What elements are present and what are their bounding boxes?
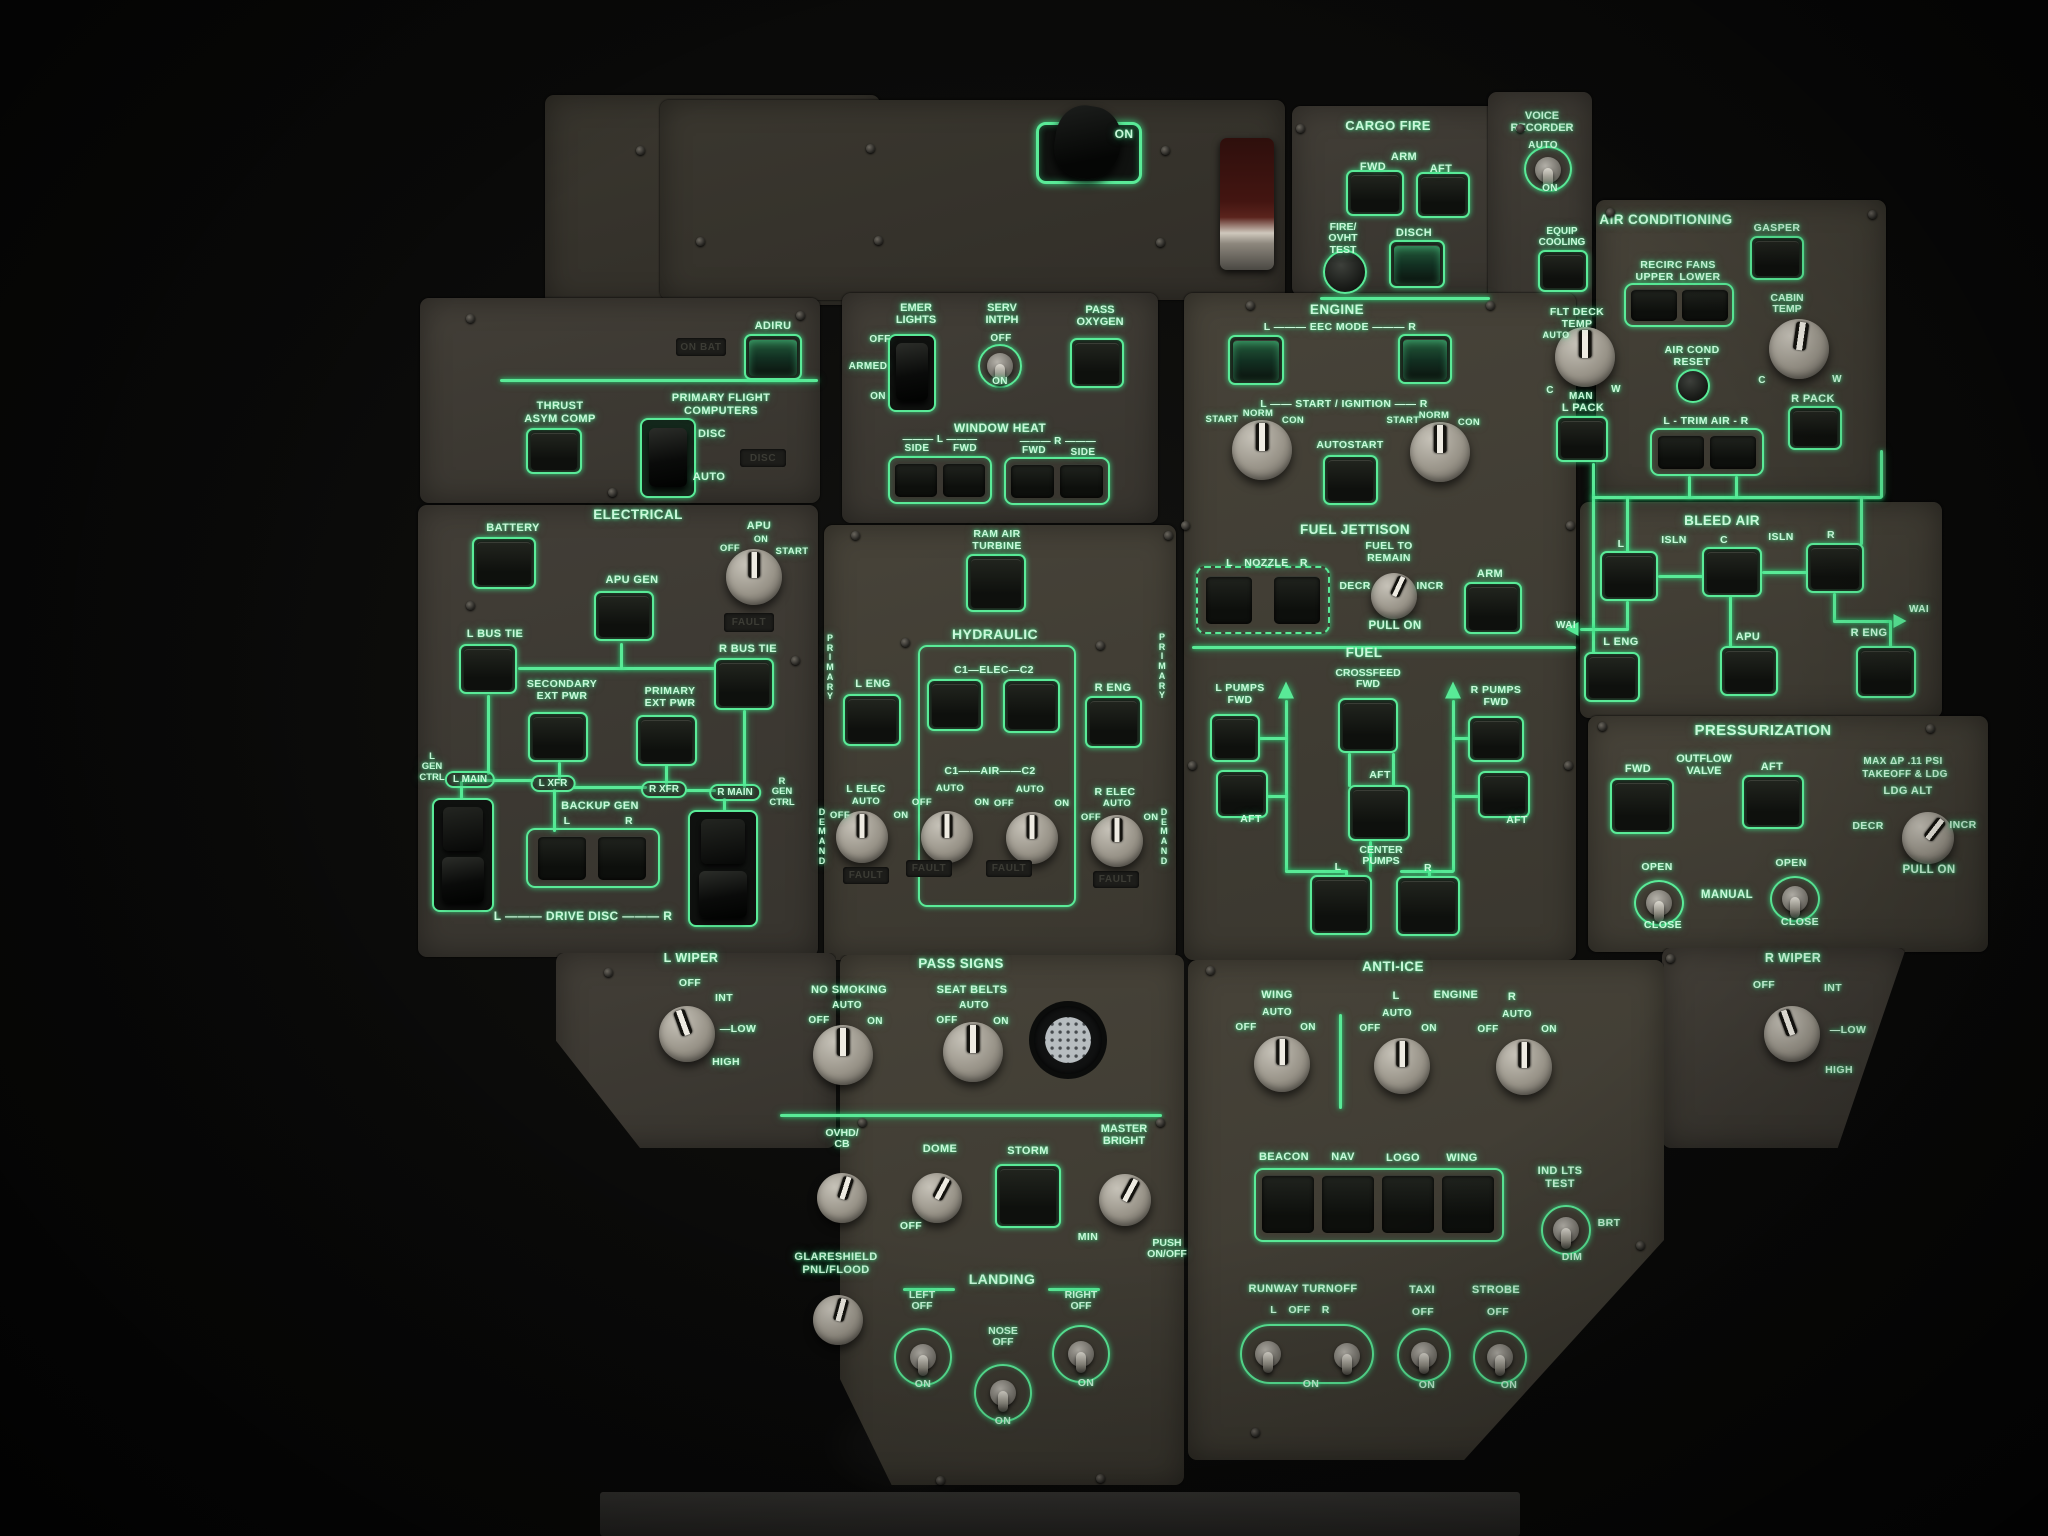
jettison-incr-label: INCR	[1416, 580, 1443, 592]
primary-ext-pwr-button[interactable]	[636, 715, 697, 766]
wing-anti-ice-knob-pointer	[1254, 1036, 1310, 1092]
hyd-c1-on-label: ON	[974, 797, 989, 808]
landing-nose-off-label: NOSE OFF	[988, 1326, 1018, 1349]
hyd-fault-annunciator: FAULT	[906, 860, 952, 877]
serv-intph-label: SERV INTPH	[986, 303, 1019, 327]
screw	[1251, 1428, 1260, 1437]
voice-recorder-on-label: ON	[1542, 183, 1558, 195]
l-gen-ctrl-label: L GEN CTRL	[419, 752, 444, 783]
backup-gen-l-button[interactable]	[538, 836, 586, 880]
ovhd-cb-brightness-knob[interactable]	[817, 1173, 867, 1223]
cargo-fire-disch-button-face	[1394, 245, 1440, 284]
beacon-light-button[interactable]	[1262, 1175, 1314, 1233]
cargo-fire-disch-button[interactable]	[1389, 240, 1445, 288]
emer-lights-switch[interactable]	[888, 334, 936, 412]
screw	[1246, 301, 1255, 310]
screw	[604, 968, 613, 977]
screw	[1206, 966, 1215, 975]
hyd-c2-elec-button-face	[1008, 684, 1055, 729]
jettison-decr-label: DECR	[1339, 580, 1370, 592]
flow-bleed	[1762, 571, 1808, 574]
pfc-disc-annunciator: DISC	[740, 449, 786, 467]
r-bus-tie-button[interactable]	[714, 658, 774, 710]
l-engine-anti-ice-knob[interactable]	[1374, 1038, 1430, 1094]
bleed-isln-r-label: ISLN	[1768, 531, 1794, 543]
r-pumps-fwd-button[interactable]	[1468, 716, 1524, 762]
strobe-off-label: OFF	[1487, 1306, 1509, 1318]
voice-recorder-auto-label: AUTO	[1528, 140, 1558, 152]
ram-air-turbine-button-face	[971, 559, 1021, 608]
window-heat-r-fwd-button[interactable]	[1011, 464, 1054, 498]
thrust-asym-comp-button[interactable]	[526, 428, 582, 474]
start-ignition-l-knob-pointer	[1232, 420, 1292, 480]
l-wiper-int-label: INT	[715, 992, 733, 1004]
storm-light-button-face	[1000, 1169, 1056, 1224]
pointer-mark	[932, 1176, 952, 1201]
cabin-temp-knob[interactable]	[1769, 319, 1829, 379]
beacon-label: BEACON	[1259, 1151, 1309, 1164]
screw	[1636, 1241, 1645, 1250]
hyd-l-eng-button[interactable]	[843, 694, 901, 746]
flow-elec	[487, 695, 490, 775]
fuel-to-remain-knob[interactable]	[1371, 573, 1417, 619]
divider-fuel	[1192, 646, 1576, 649]
flow-elec	[553, 789, 556, 832]
flow-bleed	[1592, 628, 1629, 631]
drive-disc-label: L ——— DRIVE DISC ——— R	[494, 909, 673, 923]
hyd-fault-annunciator: FAULT	[843, 867, 889, 884]
center-pumps-label: CENTER PUMPS	[1359, 845, 1402, 868]
center-pumps-r-button-face	[1401, 881, 1455, 932]
pointer-mark	[857, 814, 868, 838]
pass-oxygen-label: PASS OXYGEN	[1076, 305, 1123, 329]
ind-lts-brt-label: BRT	[1598, 1217, 1621, 1229]
speaker-grille	[1034, 1006, 1102, 1074]
l-pumps-aft-button[interactable]	[1216, 770, 1268, 818]
strobe-light-switch[interactable]	[1473, 1330, 1527, 1384]
screw	[1096, 641, 1105, 650]
screw	[466, 314, 475, 323]
screw	[696, 237, 705, 246]
recirc-fans-label: RECIRC FANS	[1640, 259, 1716, 271]
l-wiper-off-label: OFF	[679, 977, 701, 989]
hyd-c2-air-knob[interactable]	[1006, 812, 1058, 864]
l-main-tag: L MAIN	[445, 771, 495, 788]
flow-bleed	[1735, 476, 1738, 498]
battery-button-face	[477, 542, 531, 585]
flow-fuel	[1266, 795, 1287, 798]
pointer-mark	[1434, 425, 1447, 453]
r-pumps-aft-button-face	[1483, 776, 1525, 814]
r-pumps-fwd-label: R PUMPS FWD	[1471, 684, 1522, 709]
bleed-l-button[interactable]	[1600, 551, 1658, 601]
eec-mode-l-button[interactable]	[1228, 335, 1284, 385]
r-bus-tie-button-face	[719, 663, 769, 706]
ldg-alt-knob[interactable]	[1902, 812, 1954, 864]
outflow-valve-aft-button-face	[1747, 780, 1799, 825]
dome-label: DOME	[923, 1143, 958, 1156]
table-edge	[600, 1492, 1520, 1536]
jettison-arm-button[interactable]	[1464, 582, 1522, 634]
screw	[1926, 724, 1935, 733]
red-device	[1220, 138, 1274, 270]
jettison-nozzle-l-button[interactable]	[1206, 576, 1252, 624]
no-smoking-knob[interactable]	[813, 1025, 873, 1085]
dome-light-knob[interactable]	[912, 1173, 962, 1223]
battery-button[interactable]	[472, 537, 536, 589]
landing-nose-switch[interactable]	[974, 1364, 1032, 1422]
fuel-l-arrow-icon	[1278, 682, 1294, 699]
r-engine-off-label: OFF	[1477, 1024, 1498, 1036]
recirc-lower-button[interactable]	[1682, 289, 1728, 321]
thrust-asym-comp-button-face	[531, 433, 577, 470]
flow-fuel-left-bus	[1285, 700, 1288, 872]
bleed-apu-button[interactable]	[1720, 646, 1778, 696]
engine-title: ENGINE	[1310, 302, 1364, 318]
l-wiper-high-label: HIGH	[712, 1056, 740, 1068]
r-wiper-int-label: INT	[1824, 982, 1842, 994]
flt-deck-c-label: C	[1546, 385, 1554, 397]
trim-air-label: L - TRIM AIR - R	[1663, 415, 1748, 427]
center-pumps-l-button[interactable]	[1310, 875, 1372, 935]
fire-ovht-test-button[interactable]	[1323, 250, 1367, 294]
logo-label: LOGO	[1386, 1152, 1420, 1165]
jettison-nozzle-r-button[interactable]	[1274, 576, 1320, 624]
hyd-r-elec-auto-label: AUTO	[1103, 798, 1131, 809]
apu-label: APU	[747, 520, 771, 533]
start-l-label: START	[1206, 414, 1239, 425]
pointer-mark	[748, 552, 760, 578]
center-pumps-r-label: R	[1424, 862, 1432, 874]
landing-right-switch-lever	[1068, 1341, 1094, 1367]
r-pack-button[interactable]	[1788, 406, 1842, 450]
ind-lts-test-switch-lever	[1553, 1217, 1579, 1243]
pointer-mark	[1256, 423, 1269, 451]
outflow-valve-fwd-button[interactable]	[1610, 778, 1674, 834]
eec-mode-r-button[interactable]	[1398, 334, 1452, 384]
bleed-c-button-face	[1707, 552, 1757, 593]
seat-belts-off-label: OFF	[936, 1015, 957, 1027]
flow-elec-bus	[518, 667, 718, 670]
r-pack-label: R PACK	[1791, 393, 1835, 406]
adiru-button[interactable]	[744, 334, 802, 380]
bleed-air-title: BLEED AIR	[1684, 513, 1760, 529]
serv-intph-on-label: ON	[992, 376, 1008, 388]
cabin-temp-label: CABIN TEMP	[1770, 293, 1803, 316]
backup-gen-r-button[interactable]	[598, 836, 646, 880]
wai-right-arrow-icon	[1894, 614, 1907, 628]
screw	[796, 311, 805, 320]
jettison-arm-label: ARM	[1477, 568, 1503, 581]
runway-turnoff-label: RUNWAY TURNOFF	[1249, 1283, 1358, 1296]
hyd-c2-on-label: ON	[1054, 798, 1069, 809]
bleed-r-label: R	[1827, 529, 1835, 541]
hyd-c2-air-knob-pointer	[1006, 812, 1058, 864]
l-bus-tie-button[interactable]	[459, 644, 517, 694]
ovhd-cb-label: OVHD/ CB	[825, 1128, 858, 1151]
hyd-c2-off-label: OFF	[994, 798, 1014, 809]
hyd-r-elec-on-label: ON	[1143, 812, 1158, 823]
no-smoking-label: NO SMOKING	[811, 984, 887, 997]
flt-deck-auto-label: AUTO	[1543, 330, 1570, 341]
air-cond-reset-button[interactable]	[1676, 369, 1710, 403]
manual-label: MANUAL	[1701, 889, 1753, 903]
r-wiper-high-label: HIGH	[1825, 1064, 1853, 1076]
start-ignition-r-knob[interactable]	[1410, 422, 1470, 482]
crossfeed-aft-button[interactable]	[1348, 785, 1410, 841]
r-pumps-aft-button[interactable]	[1478, 771, 1530, 818]
outflow-fwd-manual-switch[interactable]	[1646, 890, 1672, 916]
hyd-c1-elec-button[interactable]	[927, 679, 983, 731]
l-pack-button[interactable]	[1556, 416, 1608, 462]
outflow-fwd-label: FWD	[1625, 763, 1651, 776]
strobe-on-label: ON	[1501, 1379, 1518, 1391]
outflow-aft-label: AFT	[1761, 761, 1784, 774]
bleed-isln-l-label: ISLN	[1661, 534, 1687, 546]
center-pumps-l-label: L	[1335, 861, 1342, 873]
hyd-r-elec-label: R ELEC	[1095, 786, 1136, 798]
panel-top-center	[660, 100, 1285, 300]
runway-turnoff-r-switch[interactable]	[1334, 1343, 1360, 1369]
no-smoking-on-label: ON	[867, 1016, 883, 1028]
r-gen-ctrl-drive-disc-switches[interactable]	[688, 810, 758, 927]
secondary-ext-pwr-button[interactable]	[528, 712, 588, 762]
hyd-l-elec-off-label: OFF	[830, 810, 850, 821]
cargo-fwd-label: FWD	[1360, 161, 1386, 174]
crossfeed-aft-button-face	[1353, 790, 1405, 837]
outflow-aft-manual-switch[interactable]	[1782, 886, 1808, 912]
wh-r-fwd-label: FWD	[1022, 445, 1046, 457]
nav-light-button[interactable]	[1322, 1175, 1374, 1233]
screw	[1516, 124, 1525, 133]
landing-left-switch-lever	[910, 1344, 936, 1370]
flow-bleed	[1688, 476, 1691, 498]
window-heat-l-fwd-button[interactable]	[943, 463, 985, 497]
adiru-button-face	[749, 339, 797, 376]
pointer-mark	[1120, 1177, 1141, 1203]
adiru-on-bat-annunciator: ON BAT	[676, 338, 726, 356]
bleed-l-eng-button[interactable]	[1584, 652, 1640, 702]
screw	[1296, 124, 1305, 133]
l-bus-tie-button-face	[464, 649, 512, 690]
fuel-r-arrow-icon	[1445, 682, 1461, 699]
gasper-button[interactable]	[1750, 236, 1804, 280]
runway-turnoff-l-switch[interactable]	[1255, 1341, 1281, 1367]
disch-label: DISCH	[1396, 227, 1432, 240]
wing-light-button[interactable]	[1442, 1175, 1494, 1233]
wing-auto-label: AUTO	[1262, 1007, 1292, 1019]
bleed-r-button-face	[1811, 548, 1859, 589]
bleed-c-button[interactable]	[1702, 547, 1762, 597]
wing-light-label: WING	[1446, 1152, 1478, 1165]
trim-air-r-button[interactable]	[1710, 435, 1756, 469]
outflow-valve-fwd-button-face	[1615, 783, 1669, 830]
screw	[1096, 1474, 1105, 1483]
runway-turnoff-l-off-r-label: L OFF R	[1270, 1304, 1330, 1316]
eec-mode-l-button-face	[1233, 340, 1279, 381]
screw	[1564, 761, 1573, 770]
hyd-c1-air-knob[interactable]	[921, 811, 973, 863]
screw	[636, 146, 645, 155]
flow-fuel	[1392, 753, 1395, 787]
screw	[1666, 954, 1675, 963]
ldg-alt-pull-on-label: PULL ON	[1902, 864, 1955, 878]
storm-light-button[interactable]	[995, 1164, 1061, 1228]
r-wiper-title: R WIPER	[1765, 951, 1821, 966]
engine-anti-ice-label: ENGINE	[1434, 989, 1479, 1002]
bleed-r-eng-button[interactable]	[1856, 646, 1916, 698]
norm-r-label: NORM	[1419, 410, 1450, 421]
r-engine-anti-ice-knob[interactable]	[1496, 1039, 1552, 1095]
taxi-on-label: ON	[1419, 1379, 1436, 1391]
pointer-mark	[1518, 1042, 1530, 1068]
r-wiper-knob[interactable]	[1764, 1006, 1820, 1062]
secondary-ext-pwr-button-face	[533, 717, 583, 758]
cargo-aft-label: AFT	[1430, 163, 1453, 176]
cabin-temp-knob-pointer	[1765, 315, 1833, 383]
pointer-mark	[1793, 321, 1809, 350]
seat-belts-on-label: ON	[993, 1016, 1009, 1028]
gasper-label: GASPER	[1754, 222, 1801, 234]
anti-ice-title: ANTI-ICE	[1362, 959, 1424, 975]
taxi-light-switch[interactable]	[1397, 1328, 1451, 1382]
screw	[1606, 208, 1615, 217]
hyd-demand-right-label: D E M A N D	[1160, 808, 1168, 866]
cargo-fire-arm-aft-button[interactable]	[1416, 172, 1470, 218]
flow-fuel	[1453, 795, 1480, 798]
hyd-c2-auto-label: AUTO	[1016, 784, 1044, 795]
hyd-c1-elec-button-face	[932, 684, 978, 727]
engine-anti-ice-r-label: R	[1508, 991, 1516, 1004]
screw	[1164, 531, 1173, 540]
glareshield-pnl-flood-knob[interactable]	[813, 1295, 863, 1345]
r-wiper-low-label: —LOW	[1830, 1024, 1867, 1036]
screw	[936, 1476, 945, 1485]
pointer-mark	[1389, 575, 1407, 598]
cargo-fire-arm-fwd-button[interactable]	[1346, 170, 1404, 216]
r-gen-ctrl-label: R GEN CTRL	[769, 777, 794, 808]
crossfeed-fwd-button[interactable]	[1338, 698, 1398, 753]
center-pumps-r-button[interactable]	[1396, 876, 1460, 936]
window-heat-l-side-button[interactable]	[895, 463, 937, 497]
fuel-to-remain-label: FUEL TO REMAIN	[1365, 540, 1412, 565]
flow-bleed	[1626, 601, 1629, 630]
r-wiper-off-label: OFF	[1753, 979, 1775, 991]
hyd-c1-auto-label: AUTO	[936, 783, 964, 794]
autostart-label: AUTOSTART	[1316, 439, 1383, 451]
landing-title: LANDING	[969, 1271, 1036, 1288]
pointer-mark	[1276, 1039, 1288, 1065]
start-ignition-label: L —— START / IGNITION —— R	[1260, 398, 1428, 410]
flow-elec	[573, 786, 647, 789]
con-r-label: CON	[1458, 417, 1480, 428]
l-pumps-fwd-button[interactable]	[1210, 714, 1260, 762]
air-conditioning-title: AIR CONDITIONING	[1599, 212, 1732, 228]
con-l-label: CON	[1282, 415, 1304, 426]
outflow-fwd-open-label: OPEN	[1641, 861, 1672, 873]
flow-bleed-left-trunk	[1592, 463, 1595, 655]
screw	[901, 638, 910, 647]
trim-air-l-button[interactable]	[1658, 435, 1704, 469]
l-wiper-knob[interactable]	[659, 1006, 715, 1062]
l-gen-ctrl-drive-disc-switches[interactable]	[432, 798, 494, 912]
backup-gen-l-label: L	[564, 815, 571, 827]
wing-anti-ice-knob[interactable]	[1254, 1036, 1310, 1092]
equip-cooling-button[interactable]	[1538, 250, 1588, 292]
ind-lts-test-switch[interactable]	[1541, 1205, 1591, 1255]
screw	[874, 236, 883, 245]
r-engine-auto-label: AUTO	[1502, 1009, 1532, 1021]
cargo-arm-label: ARM	[1391, 151, 1417, 164]
landing-right-off-label: RIGHT OFF	[1065, 1290, 1098, 1313]
emer-armed-label: ARMED	[849, 361, 888, 373]
l-wiper-low-label: —LOW	[720, 1023, 757, 1035]
wai-right-label: WAI	[1909, 604, 1929, 616]
bleed-apu-label: APU	[1736, 631, 1760, 644]
bleed-apu-button-face	[1725, 651, 1773, 692]
r-bus-tie-label: R BUS TIE	[719, 643, 777, 656]
divider-engine	[1320, 297, 1490, 300]
wh-r-side-label: SIDE	[1071, 447, 1096, 459]
recirc-upper-lower-label: UPPER LOWER	[1636, 271, 1721, 283]
takeoff-ldg-label: TAKEOFF & LDG	[1862, 769, 1948, 781]
pointer-mark	[673, 1008, 693, 1036]
hyd-r-eng-button[interactable]	[1085, 696, 1142, 748]
master-bright-knob[interactable]	[1099, 1174, 1151, 1226]
landing-right-switch[interactable]	[1052, 1325, 1110, 1383]
ram-air-turbine-button[interactable]	[966, 554, 1026, 612]
apu-off-label: OFF	[720, 543, 740, 554]
engine-anti-ice-l-label: L	[1392, 990, 1399, 1003]
bleed-r-button[interactable]	[1806, 543, 1864, 593]
wing-off-label: OFF	[1235, 1022, 1256, 1034]
hyd-l-elec-label: L ELEC	[846, 783, 886, 795]
recirc-upper-button[interactable]	[1631, 289, 1677, 321]
landing-left-on-label: ON	[915, 1378, 932, 1390]
hyd-primary-left-label: P R I M A R Y	[826, 634, 834, 702]
divider-anti-ice	[1339, 1014, 1342, 1109]
crossfeed-aft-label: AFT	[1369, 769, 1391, 781]
logo-light-button[interactable]	[1382, 1175, 1434, 1233]
start-ignition-l-knob[interactable]	[1232, 420, 1292, 480]
apu-gen-button[interactable]	[594, 591, 654, 641]
flow-bleed	[1626, 497, 1629, 553]
window-heat-r-side-button[interactable]	[1060, 464, 1103, 498]
pfc-disconnect-switch[interactable]	[640, 418, 696, 498]
autostart-button[interactable]	[1323, 455, 1378, 505]
flt-deck-w-label: W	[1611, 384, 1621, 396]
ldg-alt-label: LDG ALT	[1883, 785, 1932, 798]
crossfeed-fwd-label: CROSSFEED FWD	[1335, 668, 1400, 691]
outflow-valve-label: OUTFLOW VALVE	[1676, 754, 1732, 778]
wh-l-side-label: SIDE	[905, 443, 930, 455]
r-xfr-tag: R XFR	[641, 781, 687, 798]
apu-selector-knob[interactable]	[726, 549, 782, 605]
l-engine-anti-ice-knob-pointer	[1374, 1038, 1430, 1094]
hyd-c2-elec-button[interactable]	[1003, 679, 1060, 733]
seat-belts-knob[interactable]	[943, 1022, 1003, 1082]
eec-mode-r-button-face	[1403, 339, 1447, 380]
wing-anti-ice-label: WING	[1261, 989, 1293, 1002]
voice-recorder-switch[interactable]	[1535, 157, 1561, 183]
adiru-label: ADIRU	[755, 320, 792, 333]
pass-oxygen-button[interactable]	[1070, 338, 1124, 388]
l-pumps-aft-button-face	[1221, 775, 1263, 814]
fire-ovht-test-label: FIRE/ OVHT TEST	[1328, 222, 1357, 256]
storm-label: STORM	[1007, 1145, 1049, 1158]
secondary-ext-pwr-label: SECONDARY EXT PWR	[527, 678, 597, 703]
outflow-valve-aft-button[interactable]	[1742, 775, 1804, 829]
